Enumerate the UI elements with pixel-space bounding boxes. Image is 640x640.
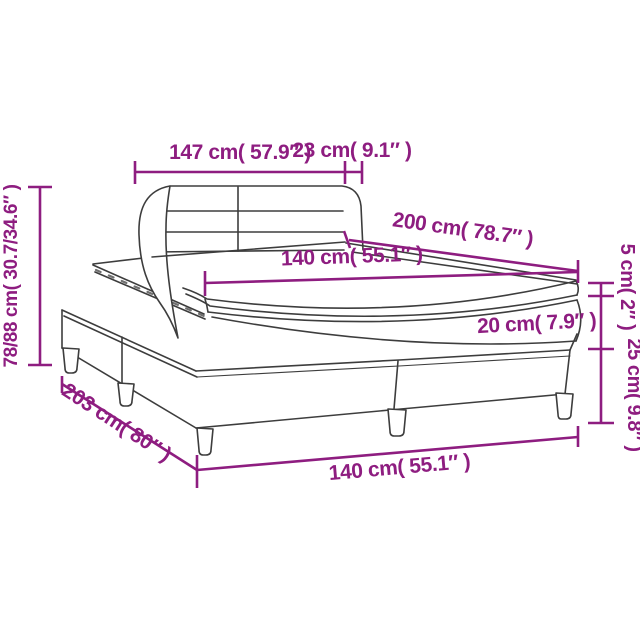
diagram-canvas: 147 cm( 57.9″ ) 23 cm( 9.1″ ) 78/88 cm( … xyxy=(0,0,640,640)
headboard xyxy=(170,186,363,250)
label-headboard-side-depth: 23 cm( 9.1″ ) xyxy=(292,139,411,162)
headboard-roll xyxy=(139,186,178,338)
leg-front-right xyxy=(556,393,573,419)
headboard-slats xyxy=(152,187,344,252)
label-height-range: 78/88 cm( 30.7/34.6″ ) xyxy=(1,184,22,367)
bed-dimension-diagram: 147 cm( 57.9″ ) 23 cm( 9.1″ ) 78/88 cm( … xyxy=(0,0,640,640)
dim-line-height-range xyxy=(28,187,52,365)
label-topper-height: 5 cm( 2″ ) xyxy=(616,244,638,331)
leg-side-mid xyxy=(118,383,134,406)
dim-line-headboard-width xyxy=(135,161,362,184)
dimension-labels: 147 cm( 57.9″ ) 23 cm( 9.1″ ) 78/88 cm( … xyxy=(1,139,640,485)
topper-right-cap xyxy=(576,281,578,295)
label-headboard-width: 147 cm( 57.9″ ) xyxy=(169,141,311,164)
base-front-seam xyxy=(394,361,398,409)
label-bed-length: 203 cm( 80″ ) xyxy=(58,379,175,466)
leg-front-mid xyxy=(388,409,406,436)
label-bed-width: 140 cm( 55.1″ ) xyxy=(328,450,471,485)
leg-rear-left xyxy=(63,348,79,373)
label-base-height: 25 cm( 9.8″ ) xyxy=(623,338,640,451)
leg-front-left xyxy=(197,428,213,455)
dim-line-heights-right xyxy=(588,283,614,423)
label-mattress-width: 140 cm( 55.1″ ) xyxy=(281,243,424,271)
